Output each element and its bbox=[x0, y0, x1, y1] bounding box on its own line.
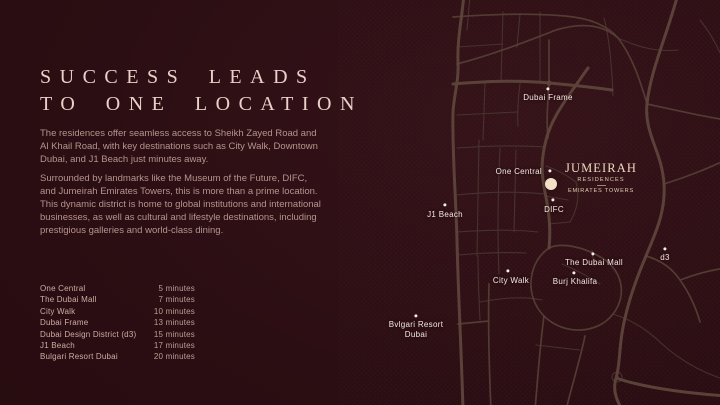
travel-time: 7 minutes bbox=[159, 295, 195, 304]
list-item: City Walk 10 minutes bbox=[40, 307, 195, 318]
logo-subtitle-residences: RESIDENCES bbox=[561, 177, 641, 183]
destination-name: Dubai Design District (d3) bbox=[40, 330, 136, 339]
headline: SUCCESS LEADS TO ONE LOCATION bbox=[40, 64, 363, 118]
intro-paragraph-2: Surrounded by landmarks like the Museum … bbox=[40, 172, 360, 237]
headline-line1: SUCCESS LEADS bbox=[40, 64, 363, 91]
travel-times-list: One Central 5 minutes The Dubai Mall 7 m… bbox=[40, 284, 195, 364]
map-label-dubai-frame: Dubai Frame bbox=[523, 93, 573, 102]
brochure-slide: SUCCESS LEADS TO ONE LOCATION The reside… bbox=[0, 0, 720, 405]
destination-name: One Central bbox=[40, 284, 85, 293]
jumeirah-residences-marker bbox=[545, 178, 557, 190]
headline-line2: TO ONE LOCATION bbox=[40, 91, 363, 118]
map-label-j1-beach: J1 Beach bbox=[427, 210, 463, 219]
map-label-one-central: One Central bbox=[496, 167, 542, 176]
travel-time: 13 minutes bbox=[154, 318, 195, 327]
list-item: J1 Beach 17 minutes bbox=[40, 341, 195, 352]
list-item: Dubai Design District (d3) 15 minutes bbox=[40, 330, 195, 341]
map-label-city-walk: City Walk bbox=[493, 276, 529, 285]
list-item: The Dubai Mall 7 minutes bbox=[40, 295, 195, 306]
travel-time: 17 minutes bbox=[154, 341, 195, 350]
destination-name: The Dubai Mall bbox=[40, 295, 97, 304]
list-item: Dubai Frame 13 minutes bbox=[40, 318, 195, 329]
travel-time: 10 minutes bbox=[154, 307, 195, 316]
logo-subtitle-emirates-towers: EMIRATES TOWERS bbox=[561, 188, 641, 194]
list-item: Bulgari Resort Dubai 20 minutes bbox=[40, 352, 195, 363]
destination-name: City Walk bbox=[40, 307, 75, 316]
destination-name: J1 Beach bbox=[40, 341, 75, 350]
map-label-burj-khalifa: Burj Khalifa bbox=[553, 277, 598, 286]
intro-paragraph-1: The residences offer seamless access to … bbox=[40, 127, 360, 166]
logo-wordmark: JUMEIRAH bbox=[561, 162, 641, 175]
logo-divider bbox=[597, 185, 606, 186]
destination-name: Dubai Frame bbox=[40, 318, 88, 327]
map-label-the-dubai-mall: The Dubai Mall bbox=[565, 258, 623, 267]
travel-time: 5 minutes bbox=[159, 284, 195, 293]
travel-time: 15 minutes bbox=[154, 330, 195, 339]
jumeirah-residences-logo: JUMEIRAH RESIDENCES EMIRATES TOWERS bbox=[561, 162, 641, 194]
list-item: One Central 5 minutes bbox=[40, 284, 195, 295]
map-label-difc: DIFC bbox=[544, 205, 564, 214]
map-label-d3: d3 bbox=[660, 253, 670, 262]
map-label-bulgari-resort: Bvlgari Resort Dubai bbox=[389, 320, 443, 339]
destination-name: Bulgari Resort Dubai bbox=[40, 352, 118, 361]
travel-time: 20 minutes bbox=[154, 352, 195, 361]
